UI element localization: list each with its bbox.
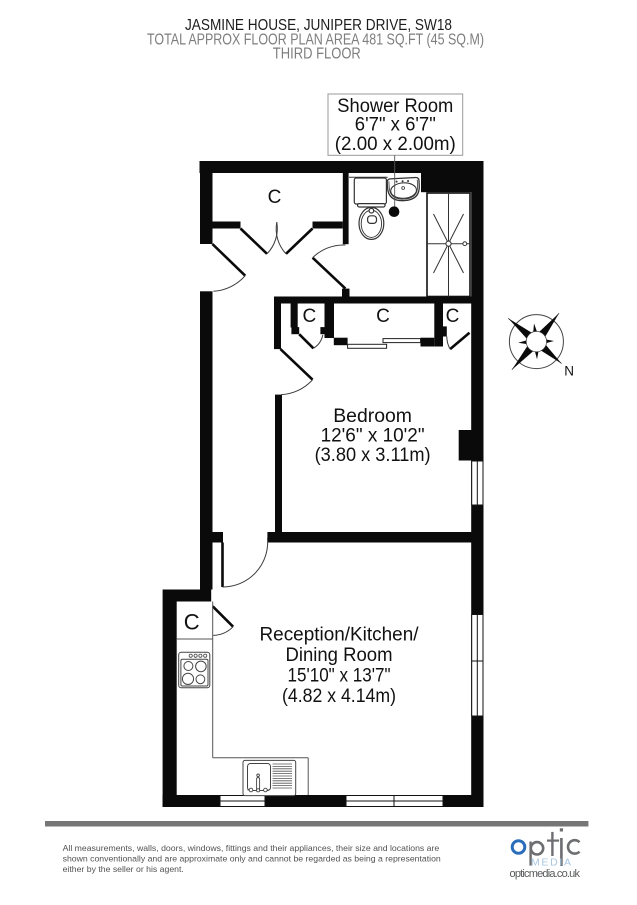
svg-text:either by the seller or his ag: either by the seller or his agent. bbox=[63, 864, 184, 874]
svg-text:THIRD FLOOR: THIRD FLOOR bbox=[273, 46, 361, 63]
svg-text:C: C bbox=[303, 306, 317, 327]
svg-text:C: C bbox=[184, 610, 200, 635]
svg-text:C: C bbox=[376, 306, 390, 327]
svg-text:opticmedia.co.uk: opticmedia.co.uk bbox=[510, 868, 581, 880]
svg-text:All measurements, walls, doors: All measurements, walls, doors, windows,… bbox=[63, 843, 440, 853]
svg-text:(3.80 x 3.11m): (3.80 x 3.11m) bbox=[315, 444, 431, 466]
svg-text:C: C bbox=[268, 187, 282, 208]
svg-text:Dining Room: Dining Room bbox=[286, 644, 393, 666]
svg-text:shown conventionally and are a: shown conventionally and are approximate… bbox=[63, 853, 441, 863]
svg-text:MEDIA: MEDIA bbox=[531, 856, 571, 868]
svg-text:(4.82 x 4.14m): (4.82 x 4.14m) bbox=[282, 685, 396, 707]
svg-text:15'10" x 13'7": 15'10" x 13'7" bbox=[288, 665, 391, 687]
svg-text:C: C bbox=[446, 306, 460, 327]
svg-text:Reception/Kitchen/: Reception/Kitchen/ bbox=[260, 624, 420, 646]
svg-text:(2.00 x 2.00m): (2.00 x 2.00m) bbox=[335, 133, 456, 155]
svg-text:N: N bbox=[564, 363, 574, 378]
